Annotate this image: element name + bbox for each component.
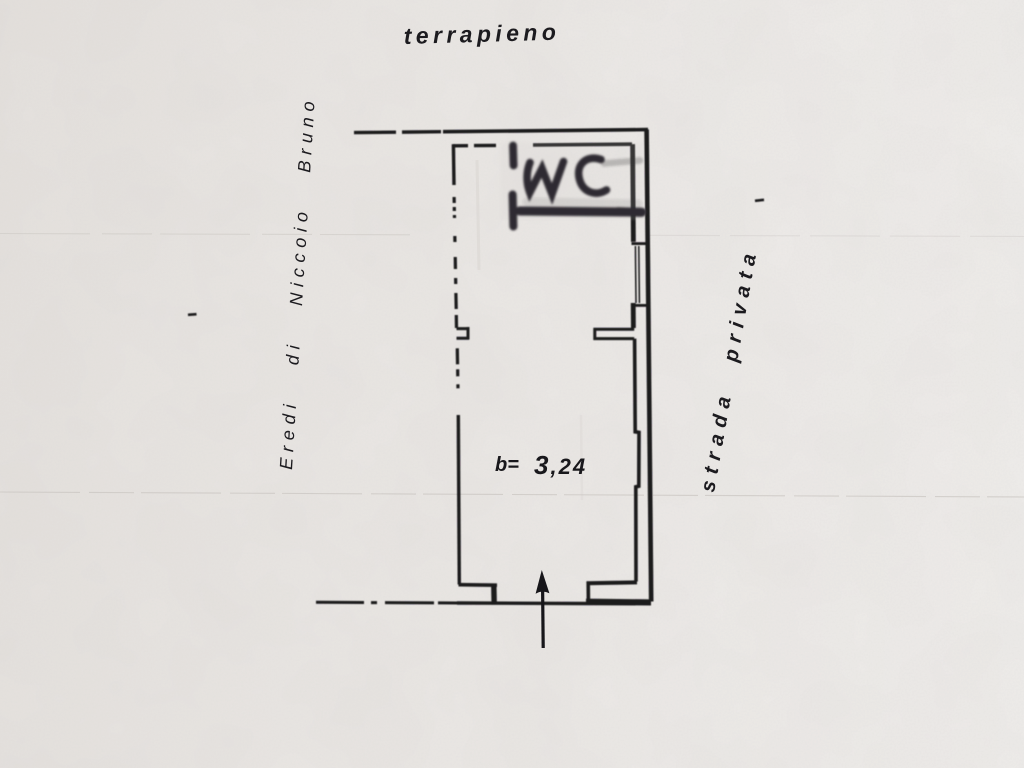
- svg-text:b=: b=: [495, 454, 519, 476]
- svg-text:terrapieno: terrapieno: [403, 19, 560, 49]
- svg-text:3,24: 3,24: [534, 450, 587, 480]
